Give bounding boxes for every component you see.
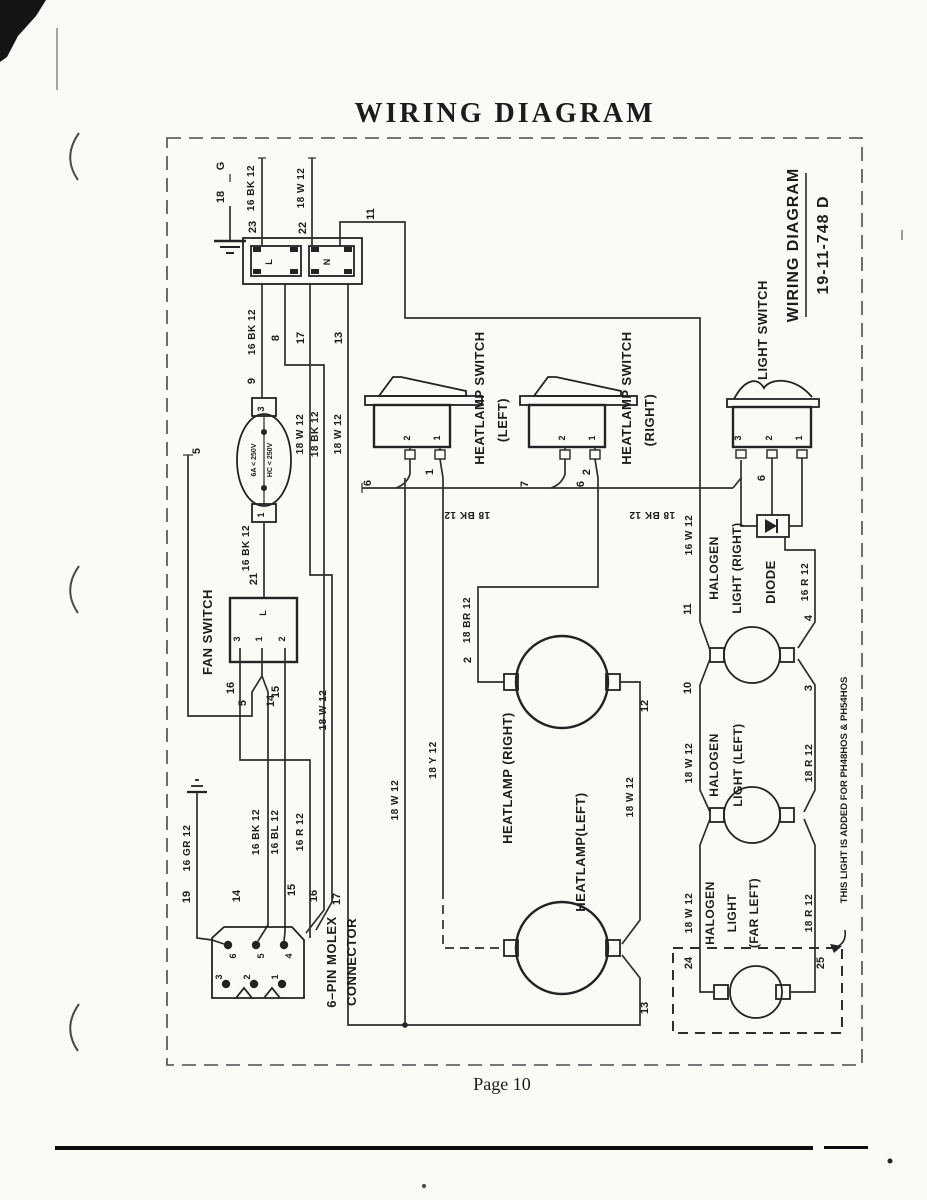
wire-2-number: 2	[581, 469, 593, 475]
heatlamp-switch-left: 2 1 HEATLAMP SWITCH (LEFT)	[365, 331, 510, 464]
terminal-L-label: L	[264, 259, 274, 265]
wire-25-gauge: 18 R 12	[804, 894, 815, 933]
molex-label-2: CONNECTOR	[344, 918, 359, 1006]
wire-14-number-end: 14	[231, 889, 243, 902]
fuse: 3 6A < 250V HC < 250V 1	[237, 398, 291, 522]
wire-9: 16 BK 12 9	[246, 284, 262, 398]
wire-25-number: 25	[815, 957, 827, 969]
titleblock: WIRING DIAGRAM 19-11-748 D	[785, 168, 832, 322]
power-terminal-block: L N	[243, 238, 362, 284]
switch-bus: 6 7 6 18 BK 12 18 BK 12	[362, 459, 741, 520]
hole-punch-arc	[70, 1004, 79, 1051]
added-light-note: THIS LIGHT IS ADDED FOR PH48HOS & PH54HO…	[830, 677, 850, 953]
wire-18-ground-letter: G	[215, 162, 227, 171]
wire-22-gauge: 18 W 12	[296, 168, 307, 209]
wire-16-number-end: 16	[308, 890, 320, 902]
wire-13-gauge: 18 W 12	[333, 414, 344, 455]
bus-wire-6b-number: 6	[575, 481, 587, 487]
molex-pin-2: 2	[242, 974, 252, 979]
molex-pin-1: 1	[270, 974, 280, 979]
molex-label-1: 6–PIN MOLEX	[324, 916, 339, 1007]
fan-switch-L-terminal: L	[258, 610, 268, 616]
halogen-right-label-2: LIGHT (RIGHT)	[730, 522, 744, 613]
wire-11-number: 11	[365, 208, 377, 220]
hs-left-terminal-1: 1	[432, 435, 442, 440]
halogen-left-wire-r-gauge: 18 R 12	[804, 744, 815, 783]
bus-gauge-left: 18 BK 12	[444, 509, 490, 520]
light-switch: 3 2 1 LIGHT SWITCH	[727, 280, 819, 458]
page-title: WIRING DIAGRAM	[355, 98, 656, 129]
wire-2-gauge: 18 BR 12	[462, 597, 473, 643]
fan-switch: FAN SWITCH L 3 1 2	[200, 589, 297, 675]
hs-right-label-1: HEATLAMP SWITCH	[619, 331, 634, 464]
bus-wire-7-number: 7	[519, 481, 531, 487]
wire-15-number-end: 15	[286, 884, 298, 896]
heatlamp-left-label: HEATLAMP(LEFT)	[573, 792, 588, 911]
fan-switch-label: FAN SWITCH	[200, 589, 215, 675]
light-switch-terminal-2: 2	[764, 435, 774, 440]
wire-11-number-end: 11	[682, 603, 694, 615]
wire-3-number: 3	[803, 685, 815, 691]
halogen-far-left-label-1: HALOGEN	[703, 881, 717, 945]
halogen-light-right: HALOGEN LIGHT (RIGHT) 10 3	[682, 522, 815, 812]
wire-2-number-end: 2	[462, 657, 474, 663]
wire-14-gauge: 16 BK 12	[251, 809, 262, 855]
titleblock-name: WIRING DIAGRAM	[785, 168, 802, 322]
wire-4: 16 R 12 4	[785, 537, 815, 648]
light-switch-terminal-1: 1	[794, 435, 804, 440]
hs-left-terminal-2: 2	[402, 435, 412, 440]
wire-18-number: 18	[215, 191, 227, 203]
halogen-far-left-label-3: (FAR LEFT)	[747, 878, 761, 948]
scanned-page: WIRING DIAGRAM Page 10 WIRING DIAGRAM 19…	[0, 0, 927, 1200]
wire-6-light-switch: 6	[756, 475, 768, 481]
hs-left-label-2: (LEFT)	[495, 398, 510, 442]
light-switch-terminal-3: 3	[733, 435, 743, 440]
bus-gauge-right: 18 BK 12	[629, 509, 675, 520]
molex-pin-5: 5	[256, 953, 266, 958]
fan-terminal-2: 2	[277, 636, 287, 641]
hs-right-terminal-1: 1	[587, 435, 597, 440]
wire-19: 16 GR 12 19	[181, 780, 224, 944]
wire-12-gauge: 18 W 12	[625, 777, 636, 818]
wire-1-number: 1	[424, 469, 436, 475]
wire-4-gauge: 16 R 12	[800, 563, 811, 602]
wire-12: 12 18 W 12	[620, 682, 651, 944]
hole-punch-arc	[70, 133, 79, 180]
halogen-light-far-left: 18 W 12 18 R 12 24 25 HALOGEN LIGHT (FAR…	[673, 878, 842, 1033]
wiring-diagram-svg: WIRING DIAGRAM Page 10 WIRING DIAGRAM 19…	[0, 0, 927, 1200]
wire-16-number: 16	[225, 682, 237, 694]
halogen-far-left-label-2: LIGHT	[725, 894, 739, 933]
wire-11-gauge: 16 W 12	[684, 515, 695, 556]
wire-13-number-end: 13	[639, 1002, 651, 1014]
wire-9-gauge: 16 BK 12	[247, 309, 258, 355]
fuse-rating-1: 6A < 250V	[251, 443, 258, 476]
wire-8-number: 8	[270, 335, 282, 341]
wire-19-number: 19	[181, 891, 193, 903]
wire-hs-left-t2-drop: 18 W 12	[390, 478, 408, 1028]
fuse-terminal-1: 1	[256, 512, 266, 517]
hs-left-label-1: HEATLAMP SWITCH	[472, 331, 487, 464]
hs-right-terminal-2: 2	[557, 435, 567, 440]
hole-punch-arc	[70, 566, 79, 613]
halogen-left-label-2: LIGHT (LEFT)	[731, 723, 745, 806]
halogen-left-wire-w-gauge: 18 W 12	[684, 743, 695, 784]
diode-circuit: 6 DIODE	[741, 458, 802, 604]
wire-hs-left-t2-gauge: 18 W 12	[390, 780, 401, 821]
wire-5-number: 5	[191, 448, 203, 454]
light-switch-label: LIGHT SWITCH	[755, 280, 770, 380]
wire-1-gauge: 18 Y 12	[428, 741, 439, 779]
wire-21-number: 21	[248, 573, 260, 585]
wire-15-number: 15	[270, 686, 282, 698]
fan-terminal-3: 3	[232, 636, 242, 641]
heatlamp-switch-right: 2 1 HEATLAMP SWITCH (RIGHT)	[520, 331, 657, 464]
wire-5-number-end: 5	[237, 700, 249, 706]
diode-label: DIODE	[763, 560, 778, 604]
fuse-terminal-3: 3	[256, 406, 266, 411]
halogen-left-label-1: HALOGEN	[707, 733, 721, 797]
wire-23-number: 23	[247, 221, 259, 233]
wire-1: 1 18 Y 12	[424, 459, 504, 948]
wire-22: 22 18 W 12	[296, 158, 316, 246]
wire-17-gauge2: 18 W 12	[318, 690, 329, 731]
terminal-N-label: N	[322, 259, 332, 266]
halogen-right-label-1: HALOGEN	[707, 536, 721, 600]
wire-24-number: 24	[683, 956, 695, 969]
diode-icon	[765, 519, 777, 533]
wire-10-number: 10	[682, 682, 694, 694]
wire-23: 23 16 BK 12	[246, 158, 266, 246]
wire-16-gauge: 16 R 12	[295, 813, 306, 852]
wire-17-gauge: 18 W 12	[295, 414, 306, 455]
molex-pin-4: 4	[284, 953, 294, 958]
wire-23-gauge: 16 BK 12	[246, 165, 257, 211]
wire-17-number: 17	[295, 332, 307, 344]
fan-terminal-1: 1	[254, 636, 264, 641]
wire-8-gauge: 18 BK 12	[310, 411, 321, 457]
wire-21-gauge: 16 BK 12	[241, 525, 252, 571]
heatlamp-left: HEATLAMP(LEFT)	[504, 792, 620, 994]
wire-17-number-end: 17	[331, 893, 343, 905]
chassis-ground-top: G 18	[214, 162, 246, 253]
wire-22-number: 22	[297, 222, 309, 234]
bus-wire-6-number: 6	[362, 480, 374, 486]
wire-12-number: 12	[639, 700, 651, 712]
wire-21: 16 BK 12 21	[241, 522, 264, 598]
titleblock-number: 19-11-748 D	[815, 195, 832, 294]
wire-15-gauge: 16 BL 12	[270, 810, 281, 855]
hs-right-label-2: (RIGHT)	[642, 394, 657, 447]
page-footer: Page 10	[473, 1074, 531, 1094]
wire-24-gauge: 18 W 12	[684, 893, 695, 934]
molex-pin-6: 6	[228, 953, 238, 958]
heatlamp-right-label: HEATLAMP (RIGHT)	[500, 712, 515, 844]
wire-4-number: 4	[803, 614, 815, 621]
heatlamp-right: HEATLAMP (RIGHT)	[500, 636, 620, 844]
molex-pin-3: 3	[214, 974, 224, 979]
wire-19-gauge: 16 GR 12	[182, 825, 193, 872]
wire-9-number: 9	[246, 378, 258, 384]
fuse-rating-2: HC < 250V	[267, 442, 274, 477]
wire-13-number: 13	[333, 332, 345, 344]
note-text: THIS LIGHT IS ADDED FOR PH48HOS & PH54HO…	[839, 677, 850, 904]
